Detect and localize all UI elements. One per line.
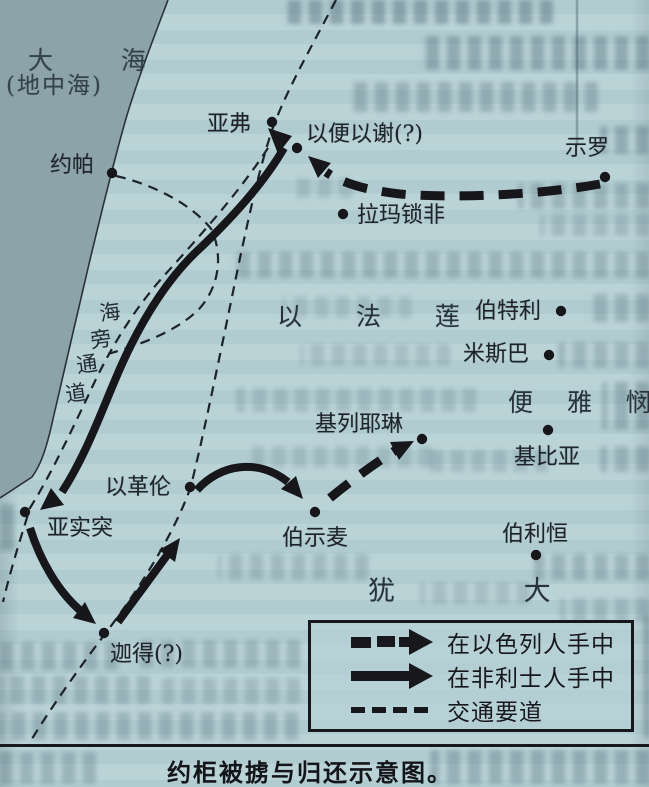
legend-israelite-label: 在以色列人手中 bbox=[447, 625, 615, 659]
city-dot-10 bbox=[20, 507, 30, 517]
route-philistine-2 bbox=[118, 554, 168, 622]
city-dot-11 bbox=[310, 507, 320, 517]
route-israelite-0 bbox=[326, 172, 600, 196]
city-dot-13 bbox=[531, 550, 541, 560]
city-dot-6 bbox=[544, 350, 554, 360]
map-caption: 约柜被掳与归还示意图。 bbox=[0, 753, 620, 787]
city-dot-2 bbox=[292, 143, 302, 153]
legend-box: 在以色列人手中 在非利士人手中 交通要道 bbox=[308, 620, 634, 732]
route-arrowhead-0 bbox=[268, 128, 292, 154]
sea-area bbox=[0, 0, 168, 498]
map-bottom-frame-line bbox=[0, 744, 649, 747]
legend-philistine-label: 在非利士人手中 bbox=[447, 659, 615, 693]
legend-item-philistine: 在非利士人手中 bbox=[349, 661, 631, 691]
city-dot-3 bbox=[600, 172, 610, 182]
scanned-book-page: 约帕亚弗以便以谢(?)示罗拉玛锁非伯特利米斯巴基比亚基列耶琳以革伦亚实突伯示麦迦… bbox=[0, 0, 649, 787]
city-dot-1 bbox=[267, 117, 277, 127]
legend-road-label: 交通要道 bbox=[447, 693, 543, 727]
route-israelite-1 bbox=[330, 450, 396, 498]
city-dot-5 bbox=[556, 306, 566, 316]
city-dot-4 bbox=[338, 209, 348, 219]
city-dot-8 bbox=[417, 434, 427, 444]
city-dot-0 bbox=[107, 168, 117, 178]
route-philistine-1 bbox=[30, 528, 82, 612]
legend-item-road: 交通要道 bbox=[349, 695, 631, 725]
thick-solid-arrow-icon bbox=[349, 663, 433, 689]
city-dot-12 bbox=[99, 628, 109, 638]
city-dot-7 bbox=[543, 425, 553, 435]
route-arrowhead-1 bbox=[40, 488, 64, 510]
thin-dashed-line-icon bbox=[349, 697, 433, 723]
thick-dashed-arrow-icon bbox=[349, 629, 433, 655]
route-philistine-3 bbox=[197, 467, 288, 490]
legend-item-israelite: 在以色列人手中 bbox=[349, 627, 631, 657]
city-dot-9 bbox=[185, 482, 195, 492]
